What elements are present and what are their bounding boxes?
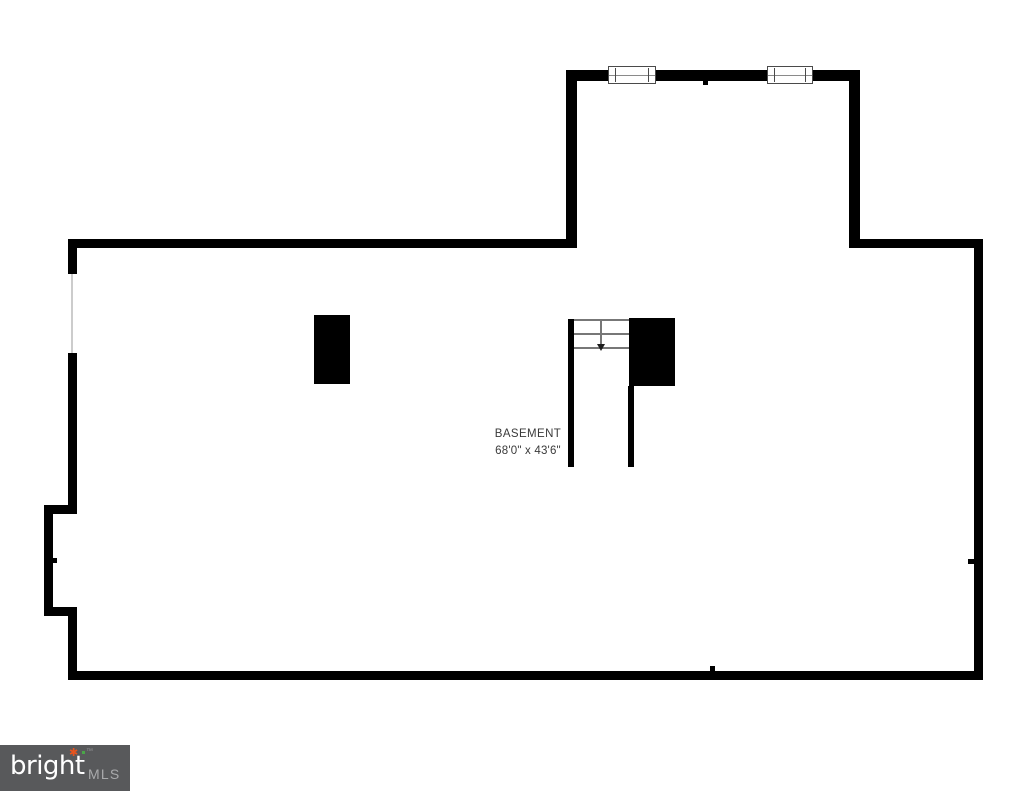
wall-opening-line — [71, 274, 73, 353]
stairs-down-arrow-icon — [597, 344, 605, 351]
stair-tread — [574, 319, 629, 321]
window-sash-right — [805, 68, 806, 82]
room-dimensions: 68'0" x 43'6" — [448, 443, 608, 460]
wall-left-middle — [68, 353, 77, 514]
wall-bottom — [68, 671, 983, 680]
trademark-symbol: ™ — [86, 748, 93, 755]
chimney-block — [629, 318, 675, 386]
bright-spark-icon: ✱ — [69, 748, 78, 759]
wall-main-top-right — [849, 239, 983, 248]
wall-main-top-left — [68, 239, 577, 248]
wall-left-lower — [68, 607, 77, 680]
dimension-tick-right — [968, 559, 974, 564]
wall-upper-left — [566, 70, 577, 248]
dimension-tick-top — [703, 81, 708, 85]
stair-tread — [574, 333, 629, 335]
dimension-tick-bay — [52, 558, 57, 563]
floor-plan-canvas: BASEMENT 68'0" x 43'6" bright ✱ ™ MLS — [0, 0, 1024, 791]
bright-spark-green-icon — [82, 751, 85, 754]
window-sash-left — [615, 68, 616, 82]
bright-mls-watermark: bright ✱ ™ MLS — [0, 745, 130, 791]
window-sash-right — [648, 68, 649, 82]
dimension-tick-bottom — [710, 666, 715, 671]
wall-right — [974, 239, 983, 680]
wall-upper-right — [849, 70, 860, 248]
mls-logo-text: MLS — [88, 766, 120, 782]
window-sash-left — [774, 68, 775, 82]
stair-direction-line — [600, 320, 602, 345]
stair-wall-right — [628, 386, 634, 467]
window-icon — [767, 66, 813, 84]
wall-left-upper — [68, 239, 77, 274]
room-label: BASEMENT 68'0" x 43'6" — [448, 426, 608, 460]
support-pillar — [314, 315, 350, 384]
window-icon — [608, 66, 656, 84]
room-name: BASEMENT — [448, 426, 608, 443]
